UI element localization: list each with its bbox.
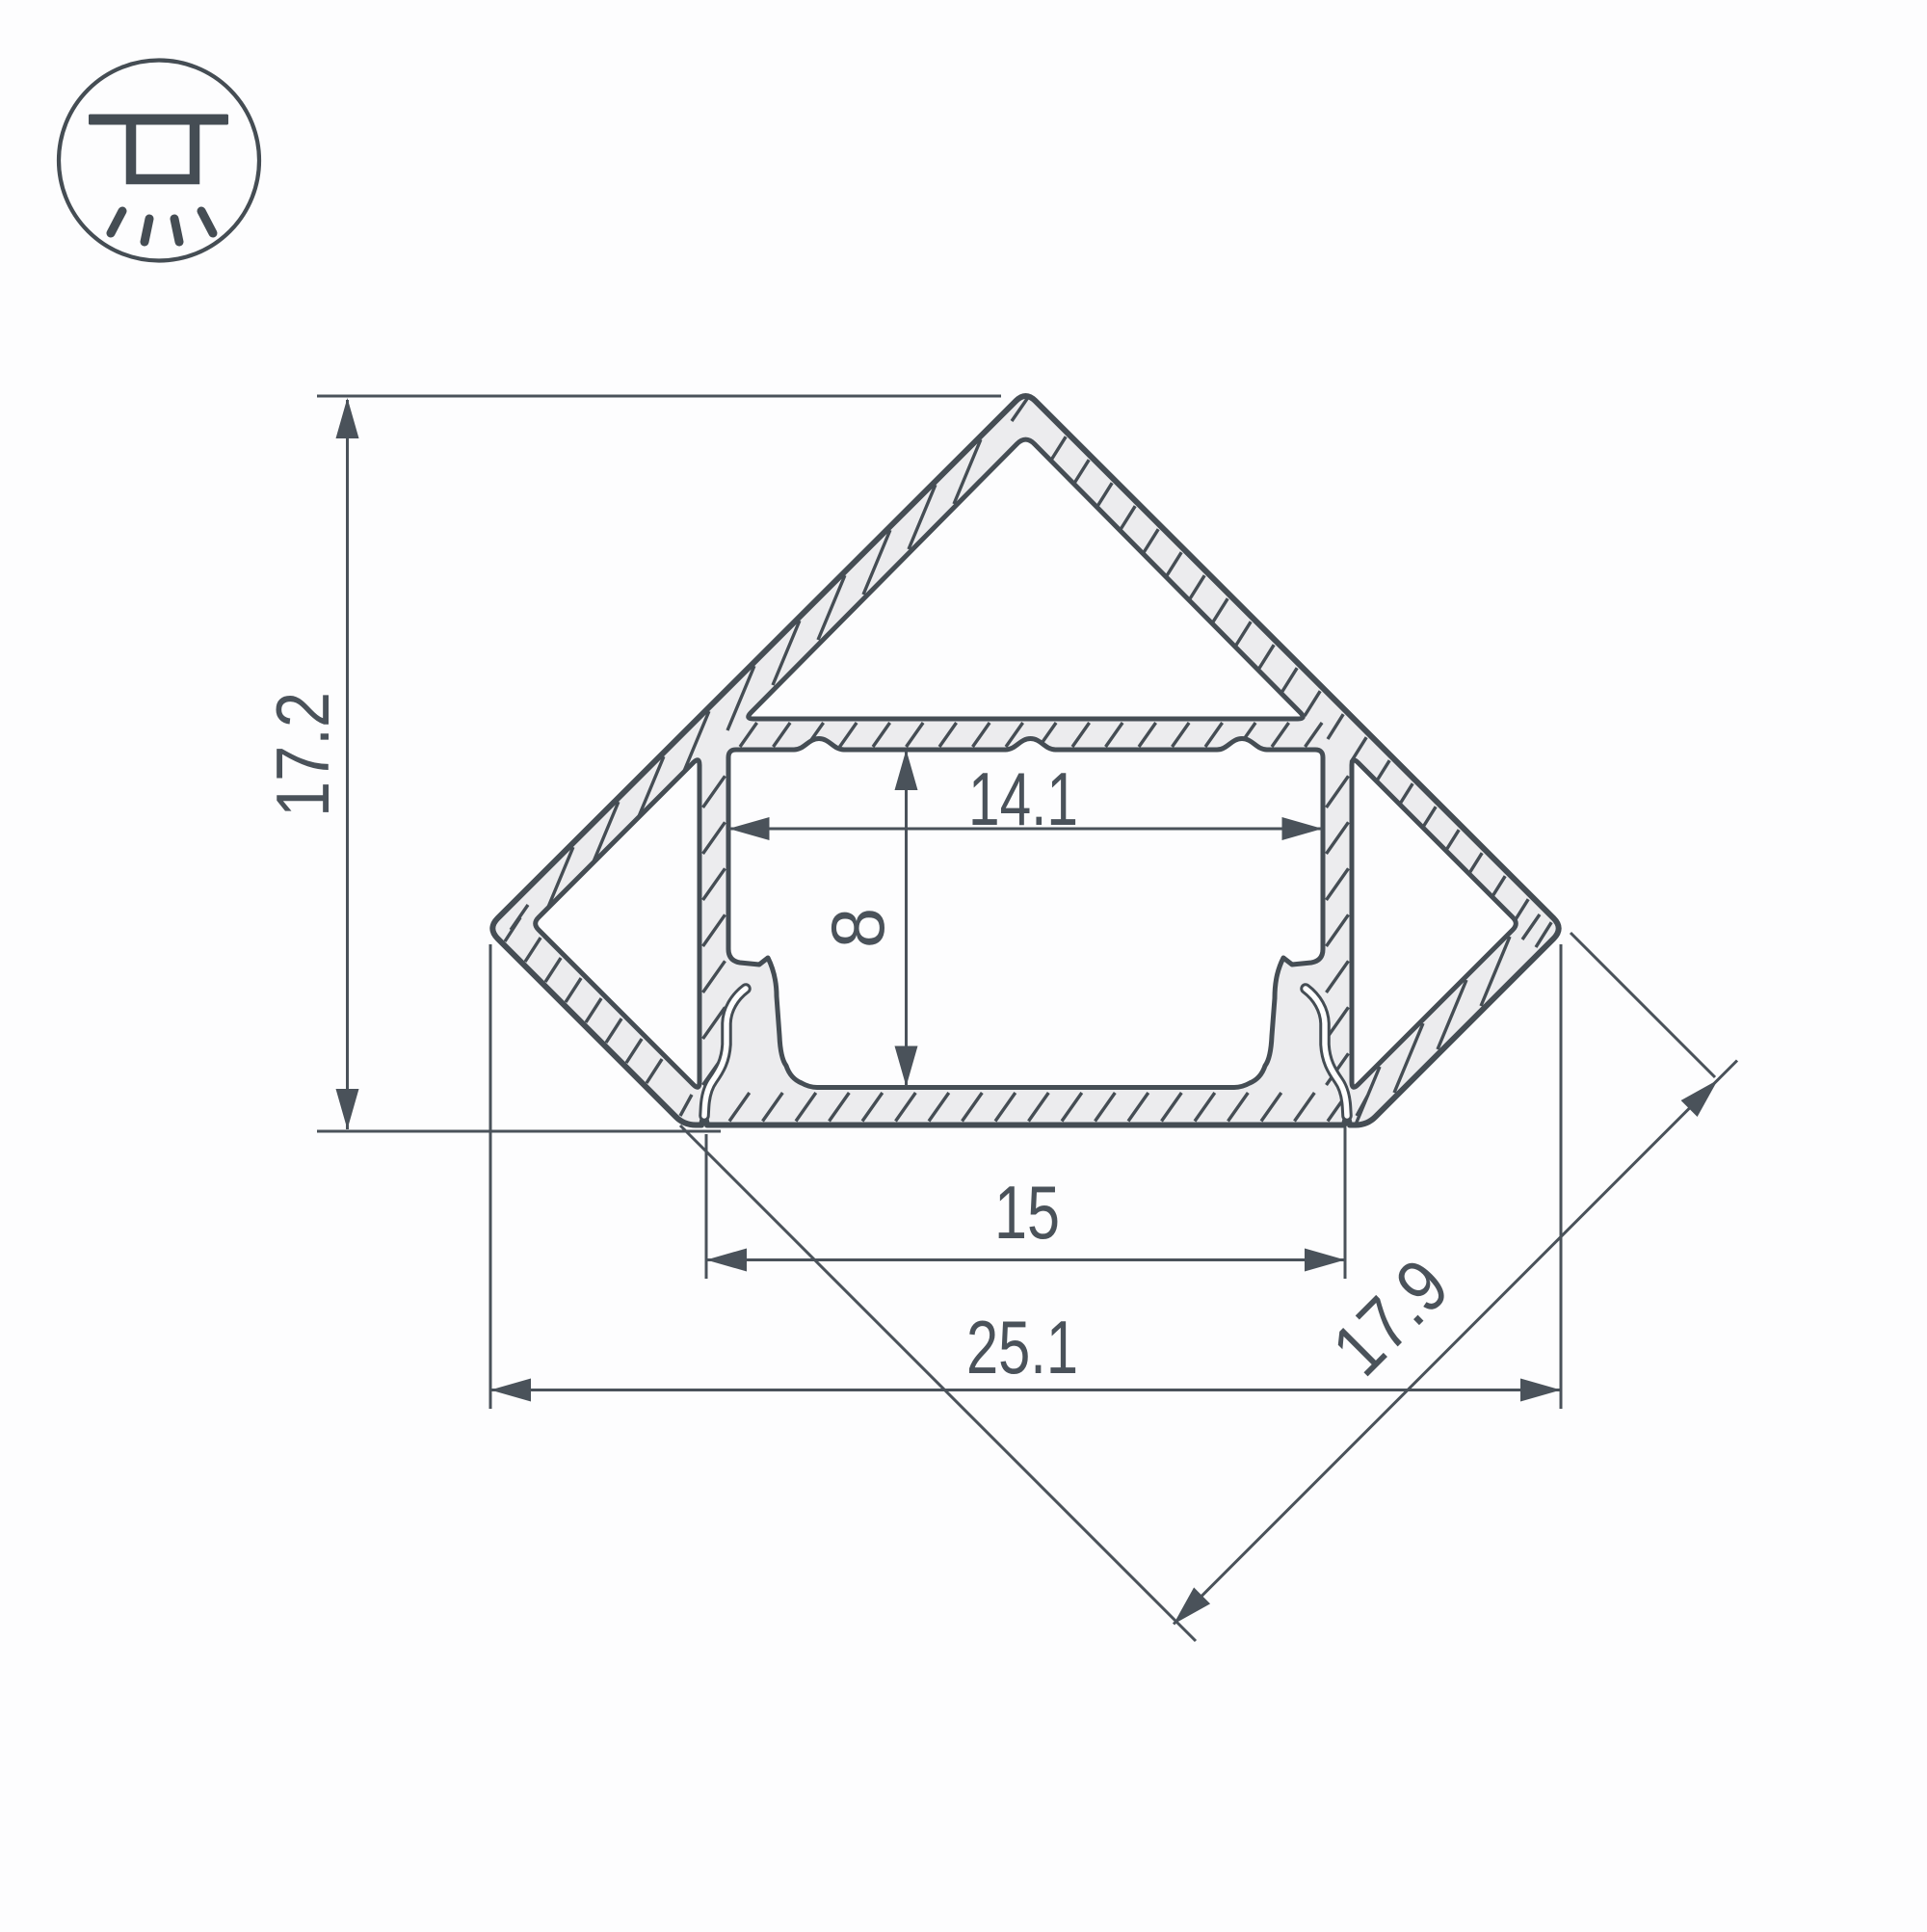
svg-text:14.1: 14.1 — [968, 756, 1078, 841]
svg-text:25.1: 25.1 — [966, 1305, 1078, 1389]
svg-text:8: 8 — [815, 908, 900, 948]
svg-text:15: 15 — [994, 1170, 1060, 1255]
svg-text:17.2: 17.2 — [260, 692, 345, 817]
